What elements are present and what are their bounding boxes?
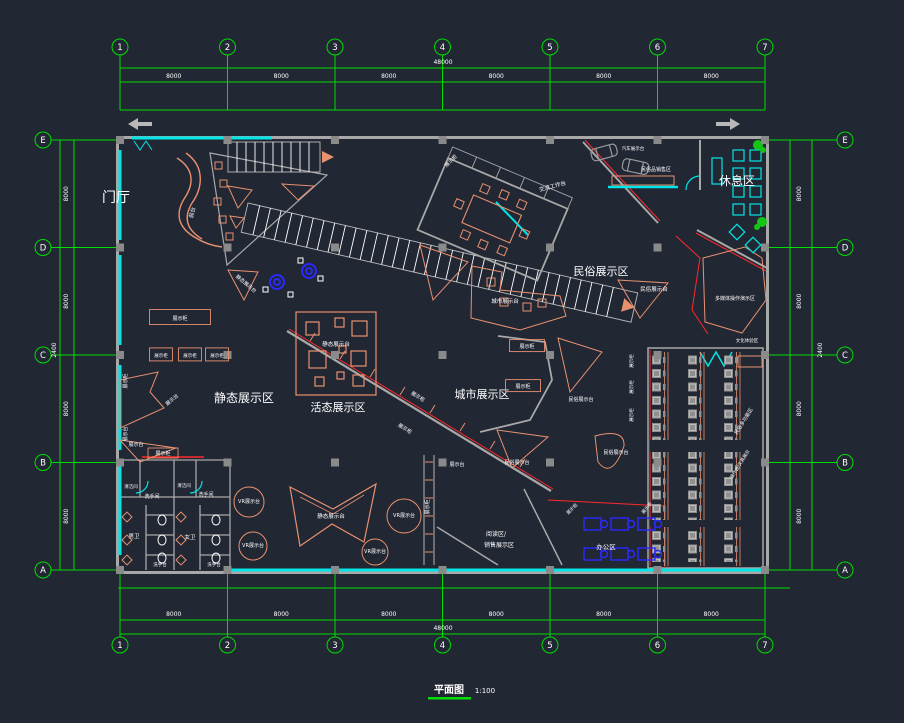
drawing-scale: 1:100 — [475, 687, 495, 695]
grid-bubble-label: D — [40, 244, 47, 254]
door-arc — [686, 176, 700, 190]
plan-label: 展示柜 — [628, 354, 635, 368]
dim-text: 8000 — [796, 293, 803, 308]
column — [761, 566, 769, 574]
column — [439, 459, 447, 467]
column — [224, 351, 232, 359]
plan-label: VR展示台 — [364, 548, 386, 555]
dim-extra: 2400 — [51, 342, 58, 357]
column — [224, 459, 232, 467]
dim-text: 8000 — [596, 73, 611, 80]
plan-label: 民俗展示区 — [574, 265, 629, 278]
column — [546, 459, 554, 467]
grid-bubble-label: 1 — [117, 641, 122, 651]
plan-label: 民俗展示台 — [504, 459, 529, 466]
plan-label: 民俗展示台 — [640, 285, 668, 293]
dim-text: 8000 — [166, 611, 181, 618]
entrance-door-swing — [134, 141, 152, 150]
plan-label: 静态展示台 — [317, 512, 345, 520]
dim-text: 8000 — [63, 293, 70, 308]
plan-label: 展示柜 — [210, 352, 224, 359]
plan-label: 展示台 — [128, 441, 143, 448]
floor-plan-drawing: 11223344556677EEDDCCBBAA 800080008000800… — [0, 0, 904, 723]
column — [439, 136, 447, 144]
column — [116, 459, 124, 467]
plan-label: 活态展示区 — [311, 401, 366, 414]
plan-label: 阅读区/ — [486, 530, 507, 538]
grid-bubble-label: 4 — [440, 43, 445, 53]
reading-zone-walls — [437, 489, 562, 565]
plant-icon — [753, 140, 767, 230]
plan-label: 展示台 — [449, 461, 464, 468]
dim-text: 8000 — [796, 401, 803, 416]
multimedia-room — [703, 247, 766, 333]
grid-bubble-label: B — [842, 459, 848, 469]
column — [116, 351, 124, 359]
column — [654, 459, 662, 467]
plan-label: 展示柜 — [410, 390, 426, 404]
dim-text: 8000 — [63, 508, 70, 523]
display-triangle — [420, 245, 468, 300]
plan-label: 洗手间 — [198, 491, 213, 498]
dim-text: 8000 — [381, 611, 396, 618]
grid-bubble-label: 5 — [547, 641, 552, 651]
grid-bubble-label: A — [842, 566, 848, 576]
column — [439, 566, 447, 574]
column — [654, 136, 662, 144]
column — [224, 136, 232, 144]
plan-label: 静态展示台 — [322, 340, 350, 348]
city-platform — [471, 266, 566, 330]
drawing-title: 平面图 — [434, 684, 464, 696]
column — [439, 244, 447, 252]
grid-bubble-label: 3 — [332, 641, 337, 651]
plan-label: 展示柜 — [515, 383, 530, 390]
washroom-door-arcs — [136, 481, 202, 493]
plan-label: 展示柜 — [397, 422, 413, 436]
grid-bubble-label: A — [40, 566, 46, 576]
plan-label: 多媒体操作演示区 — [715, 295, 755, 302]
plan-label: 展示柜 — [424, 499, 431, 514]
column — [116, 136, 124, 144]
grid-bubble-label: 6 — [655, 641, 660, 651]
column — [761, 136, 769, 144]
rest-area-furniture — [712, 150, 761, 253]
grid-bubble-label: 3 — [332, 43, 337, 53]
grid-bubble-label: D — [842, 244, 849, 254]
dim-text: 8000 — [63, 401, 70, 416]
grid-bubble-label: E — [40, 136, 45, 146]
plan-label: 展示台 — [122, 426, 129, 441]
grid-bubble-label: 4 — [440, 641, 445, 651]
dim-text: 8000 — [489, 73, 504, 80]
dim-text: 8000 — [704, 611, 719, 618]
dim-extra: 2400 — [817, 342, 824, 357]
plan-label: 交流工作台 — [538, 179, 567, 194]
grid-bubble-label: 2 — [225, 43, 230, 53]
plan-label: 城市展示区 — [455, 387, 510, 401]
column — [546, 136, 554, 144]
stair-arrow-icon — [322, 151, 334, 163]
dim-total: 48000 — [433, 59, 452, 66]
dim-text: 8000 — [489, 611, 504, 618]
column — [224, 244, 232, 252]
column — [761, 244, 769, 252]
grid-bubble-label: C — [40, 351, 46, 361]
column — [654, 244, 662, 252]
plan-label: 汽车展示台 — [622, 145, 645, 152]
dim-text: 8000 — [166, 73, 181, 80]
title-block: 平面图 1:100 — [428, 684, 495, 700]
plan-label: 销售展示区 — [484, 541, 514, 549]
plan-label: 女卫 — [184, 533, 196, 541]
plan-label: 文化体验区 — [736, 337, 759, 344]
dim-total: 48000 — [433, 625, 452, 632]
dim-text: 8000 — [274, 73, 289, 80]
plan-label: 展示柜 — [172, 315, 187, 322]
column — [654, 566, 662, 574]
plan-label: 展示柜 — [628, 380, 635, 394]
plan-label: 展示柜 — [628, 408, 635, 422]
stairs — [228, 142, 638, 322]
dim-text: 8000 — [796, 186, 803, 201]
grid-bubble-label: 2 — [225, 641, 230, 651]
column — [116, 566, 124, 574]
title-underline — [428, 697, 471, 700]
plan-label: VR展示台 — [238, 498, 260, 505]
grid-bubble-label: 7 — [762, 641, 767, 651]
plan-label: 展示柜 — [155, 450, 170, 457]
column — [331, 459, 339, 467]
column — [331, 566, 339, 574]
column — [224, 566, 232, 574]
plan-label: 清洁间 — [177, 482, 191, 489]
dim-text: 8000 — [704, 73, 719, 80]
stair-flight-upper — [228, 142, 320, 172]
grid-bubble-label: C — [842, 351, 848, 361]
plan-label: 办公区 — [596, 542, 616, 551]
plan-label: 城市展示台 — [491, 297, 519, 305]
sale-diagonal — [583, 142, 658, 223]
plan-label: 静态展示区 — [214, 391, 274, 405]
grid-bubble-label: 7 — [762, 43, 767, 53]
plan-label: 展示柜 — [183, 352, 197, 359]
column — [761, 459, 769, 467]
grid-bubble-label: E — [842, 136, 847, 146]
grid-bubble-label: 5 — [547, 43, 552, 53]
plan-label: 展示柜 — [154, 352, 168, 359]
dim-text: 8000 — [596, 611, 611, 618]
grid-bubble-label: 6 — [655, 43, 660, 53]
column — [439, 351, 447, 359]
plan-label: 清洁间 — [124, 483, 138, 490]
dim-text: 8000 — [796, 508, 803, 523]
dim-text: 8000 — [274, 611, 289, 618]
plan-label: 展示柜 — [519, 343, 534, 350]
round-exhibit-tables — [270, 264, 316, 289]
dim-text: 8000 — [381, 73, 396, 80]
grid-bubble-label: 1 — [117, 43, 122, 53]
column — [331, 136, 339, 144]
plan-label: 洗手台 — [207, 561, 221, 568]
dim-text: 8000 — [63, 186, 70, 201]
column — [546, 351, 554, 359]
cad-viewport: 11223344556677EEDDCCBBAA 800080008000800… — [0, 0, 904, 723]
column — [331, 244, 339, 252]
column — [546, 244, 554, 252]
plan-label: 民俗展示台 — [568, 396, 593, 403]
column — [761, 351, 769, 359]
grid-bubble-label: B — [40, 459, 46, 469]
plan-label: 民俗展示台 — [603, 449, 628, 456]
column — [654, 351, 662, 359]
plan-label: 展示柜 — [122, 373, 129, 388]
plan-label: VR展示台 — [242, 542, 264, 549]
column — [546, 566, 554, 574]
plan-label: 民俗品销售区 — [641, 166, 671, 173]
plan-label: VR展示台 — [393, 512, 415, 519]
plan-label: 展示柜 — [565, 501, 580, 516]
plan-label: 静态展示台 — [234, 273, 258, 294]
plan-label: 男卫 — [128, 533, 140, 540]
plan-label: 展示台 — [164, 392, 180, 407]
column — [116, 244, 124, 252]
plan-label: 休息区 — [719, 173, 755, 188]
plan-label: 门厅 — [102, 190, 130, 206]
plan-label: 洗手间 — [144, 493, 159, 500]
entry-arrow-icons — [128, 118, 740, 130]
column — [331, 351, 339, 359]
plan-label: 洗手台 — [153, 561, 167, 568]
